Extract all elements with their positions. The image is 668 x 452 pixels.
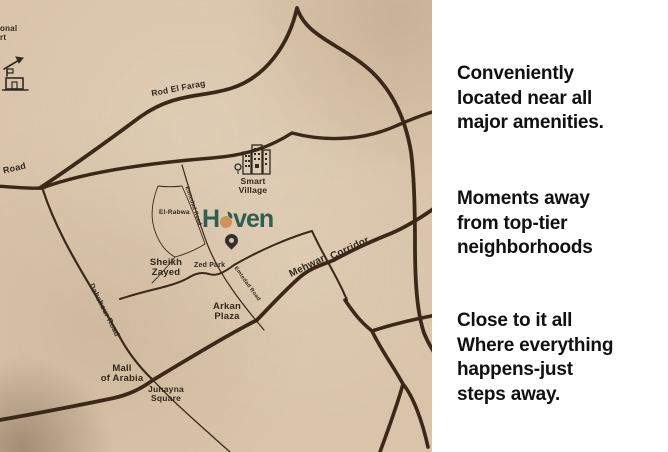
road-right-lower	[345, 300, 432, 452]
road-mehwar	[153, 207, 432, 380]
airport-label-fragment: onal rt	[0, 25, 17, 43]
juhayna-square-label: Juhayna Square	[140, 385, 192, 404]
road-upper	[0, 111, 432, 188]
amenities-paragraph: Conveniently located near all major amen…	[457, 62, 659, 136]
haven-logo-left: H	[202, 205, 219, 234]
haven-logo-right: ven	[233, 205, 273, 234]
buildings-icon	[233, 137, 271, 177]
slide: onal rt Road Rod El Farag	[0, 0, 668, 452]
sun-dot-icon	[220, 216, 232, 228]
close-to-it-all-paragraph: Close to it all Where everything happens…	[457, 309, 659, 407]
airport-icon	[2, 54, 32, 96]
smart-village-label: Smart Village	[228, 177, 278, 196]
road-bottom-left	[0, 380, 153, 421]
location-map: onal rt Road Rod El Farag	[0, 0, 433, 452]
sheikh-zayed-label: Sheikh Zayed	[140, 258, 192, 279]
mall-of-arabia-label: Mall of Arabia	[94, 364, 150, 385]
haven-logo: H ven	[202, 205, 273, 234]
text-panel: Conveniently located near all major amen…	[432, 0, 668, 452]
arkan-plaza-label: Arkan Plaza	[202, 302, 252, 323]
road-dahshour	[43, 190, 153, 380]
zed-park-label: Zed Park	[194, 262, 225, 270]
el-rabwa-label: El-Rabwa	[159, 209, 190, 216]
neighborhoods-paragraph: Moments away from top-tier neighborhoods	[457, 187, 659, 261]
